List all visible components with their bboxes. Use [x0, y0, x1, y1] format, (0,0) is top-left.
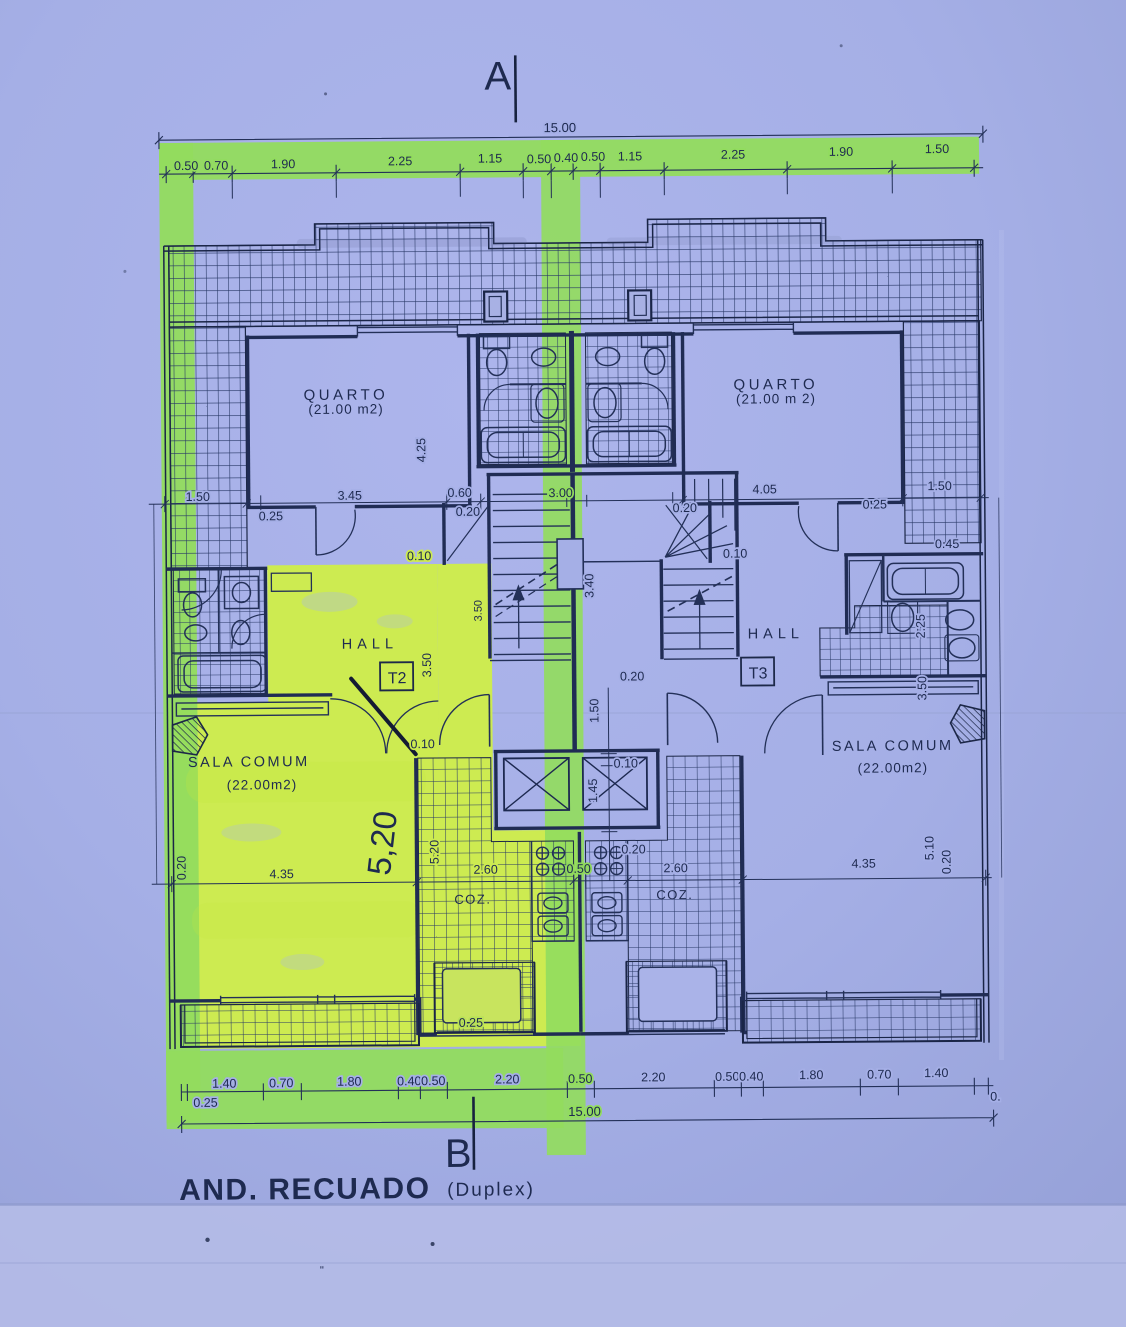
svg-text:0.40: 0.40	[397, 1074, 421, 1088]
svg-text:0.50: 0.50	[421, 1074, 445, 1088]
svg-text:4.05: 4.05	[752, 482, 776, 496]
svg-text:3.50: 3.50	[473, 600, 485, 622]
svg-text:1.15: 1.15	[618, 149, 642, 163]
svg-text:1.40: 1.40	[924, 1066, 948, 1080]
svg-text:T3: T3	[749, 665, 768, 682]
svg-text:15.00: 15.00	[568, 1104, 601, 1119]
svg-text:5.10: 5.10	[922, 836, 936, 860]
svg-text:1.90: 1.90	[829, 145, 853, 159]
svg-text:1.50: 1.50	[925, 142, 949, 156]
svg-text:0.50: 0.50	[527, 152, 551, 166]
svg-text:0.50: 0.50	[566, 862, 590, 876]
svg-text:4.35: 4.35	[851, 857, 875, 871]
svg-text:1.50: 1.50	[185, 490, 209, 504]
svg-text:(22.00m2): (22.00m2)	[227, 777, 298, 793]
svg-text:4.25: 4.25	[414, 438, 428, 462]
svg-text:0.60: 0.60	[447, 486, 471, 500]
svg-text:(Duplex): (Duplex)	[447, 1179, 535, 1201]
svg-text:0.20: 0.20	[940, 850, 954, 874]
svg-text:0.10: 0.10	[410, 737, 434, 751]
svg-text:0.70: 0.70	[867, 1067, 891, 1081]
svg-text:1.90: 1.90	[271, 157, 295, 171]
svg-text:3.50: 3.50	[915, 676, 929, 700]
svg-text:5,20: 5,20	[360, 809, 404, 877]
svg-text:15.00: 15.00	[543, 120, 576, 135]
svg-text:1.15: 1.15	[478, 151, 502, 165]
svg-text:COZ.: COZ.	[454, 892, 491, 907]
svg-text:0.10: 0.10	[407, 549, 431, 563]
svg-text:0.: 0.	[990, 1090, 1001, 1104]
svg-text:0.25: 0.25	[459, 1016, 483, 1030]
svg-text:A: A	[484, 54, 511, 98]
svg-text:2.20: 2.20	[495, 1072, 519, 1086]
svg-text:(22.00m2): (22.00m2)	[858, 760, 929, 776]
svg-text:2.25: 2.25	[388, 154, 412, 168]
svg-text:0.20: 0.20	[175, 856, 189, 880]
svg-text:1.80: 1.80	[799, 1068, 823, 1082]
svg-text:0.10: 0.10	[614, 756, 638, 770]
svg-text:3.50: 3.50	[420, 653, 434, 677]
svg-text:COZ.: COZ.	[656, 887, 693, 902]
svg-text:0.20: 0.20	[621, 842, 645, 856]
svg-text:ʹʹ: ʹʹ	[320, 1265, 324, 1277]
svg-text:B: B	[445, 1132, 472, 1176]
svg-text:3.45: 3.45	[337, 489, 361, 503]
svg-text:0.10: 0.10	[723, 547, 747, 561]
svg-text:1.50: 1.50	[587, 698, 601, 722]
svg-text:0.25: 0.25	[863, 497, 887, 511]
svg-text:1.45: 1.45	[586, 779, 600, 803]
svg-text:0.50: 0.50	[568, 1072, 592, 1086]
svg-text:2.20: 2.20	[641, 1070, 665, 1084]
svg-text:3.00: 3.00	[548, 486, 572, 500]
svg-text:0.50: 0.50	[581, 150, 605, 164]
svg-text:(21.00 m 2): (21.00 m 2)	[736, 391, 816, 407]
svg-text:3.40: 3.40	[582, 574, 596, 598]
svg-text:2.60: 2.60	[663, 861, 687, 875]
svg-text:0.20: 0.20	[456, 505, 480, 519]
svg-text:0.45: 0.45	[935, 537, 959, 551]
svg-text:0.40: 0.40	[739, 1069, 763, 1083]
svg-text:AND. RECUADO: AND. RECUADO	[179, 1172, 431, 1207]
svg-text:0.50: 0.50	[715, 1070, 739, 1084]
svg-text:1.50: 1.50	[927, 479, 951, 493]
svg-text:4.35: 4.35	[269, 867, 293, 881]
svg-text:1.40: 1.40	[212, 1077, 236, 1091]
svg-text:2.25: 2.25	[914, 614, 928, 638]
svg-text:2.60: 2.60	[473, 863, 497, 877]
svg-text:T2: T2	[388, 670, 407, 687]
svg-text:0.20: 0.20	[620, 669, 644, 683]
svg-text:0.70: 0.70	[204, 159, 228, 173]
svg-text:HALL: HALL	[748, 626, 804, 642]
svg-text:0.25: 0.25	[259, 509, 283, 523]
svg-text:0.70: 0.70	[269, 1076, 293, 1090]
svg-text:0.25: 0.25	[193, 1096, 217, 1110]
svg-text:0.50: 0.50	[174, 159, 198, 173]
svg-text:SALA COMUM: SALA COMUM	[832, 738, 954, 755]
svg-text:(21.00 m2): (21.00 m2)	[308, 401, 383, 417]
svg-text:2.25: 2.25	[721, 148, 745, 162]
svg-text:1.80: 1.80	[337, 1075, 361, 1089]
svg-text:0.40: 0.40	[554, 151, 578, 165]
svg-text:HALL: HALL	[342, 636, 398, 652]
svg-text:0.20: 0.20	[673, 501, 697, 515]
svg-text:SALA COMUM: SALA COMUM	[188, 754, 310, 771]
svg-text:5.20: 5.20	[427, 840, 441, 864]
